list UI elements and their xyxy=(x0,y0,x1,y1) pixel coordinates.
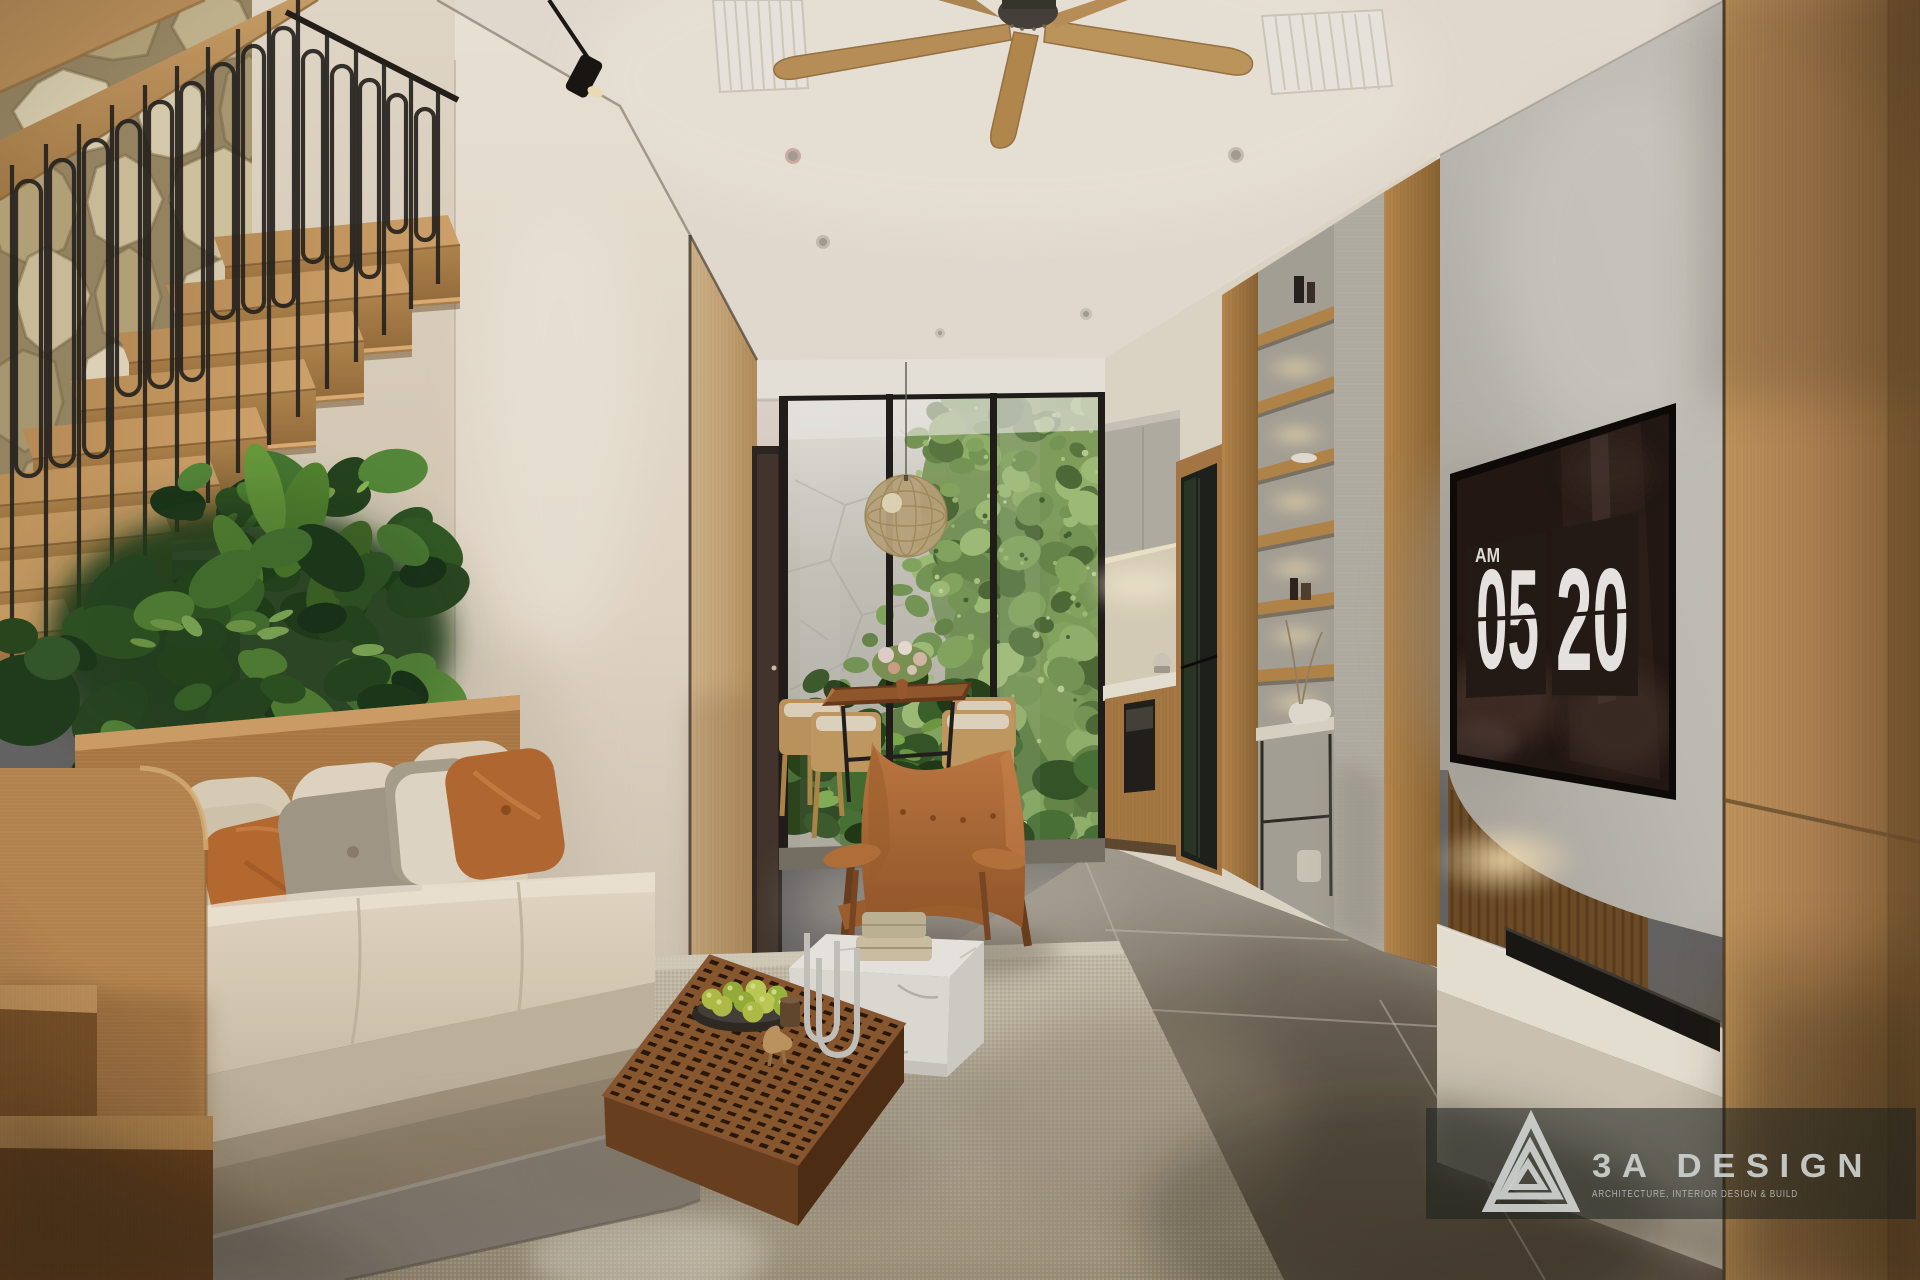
svg-text:ARCHITECTURE, INTERIOR DESIGN: ARCHITECTURE, INTERIOR DESIGN & BUILD xyxy=(1592,1189,1798,1200)
svg-text:3A DESIGN: 3A DESIGN xyxy=(1592,1147,1873,1184)
